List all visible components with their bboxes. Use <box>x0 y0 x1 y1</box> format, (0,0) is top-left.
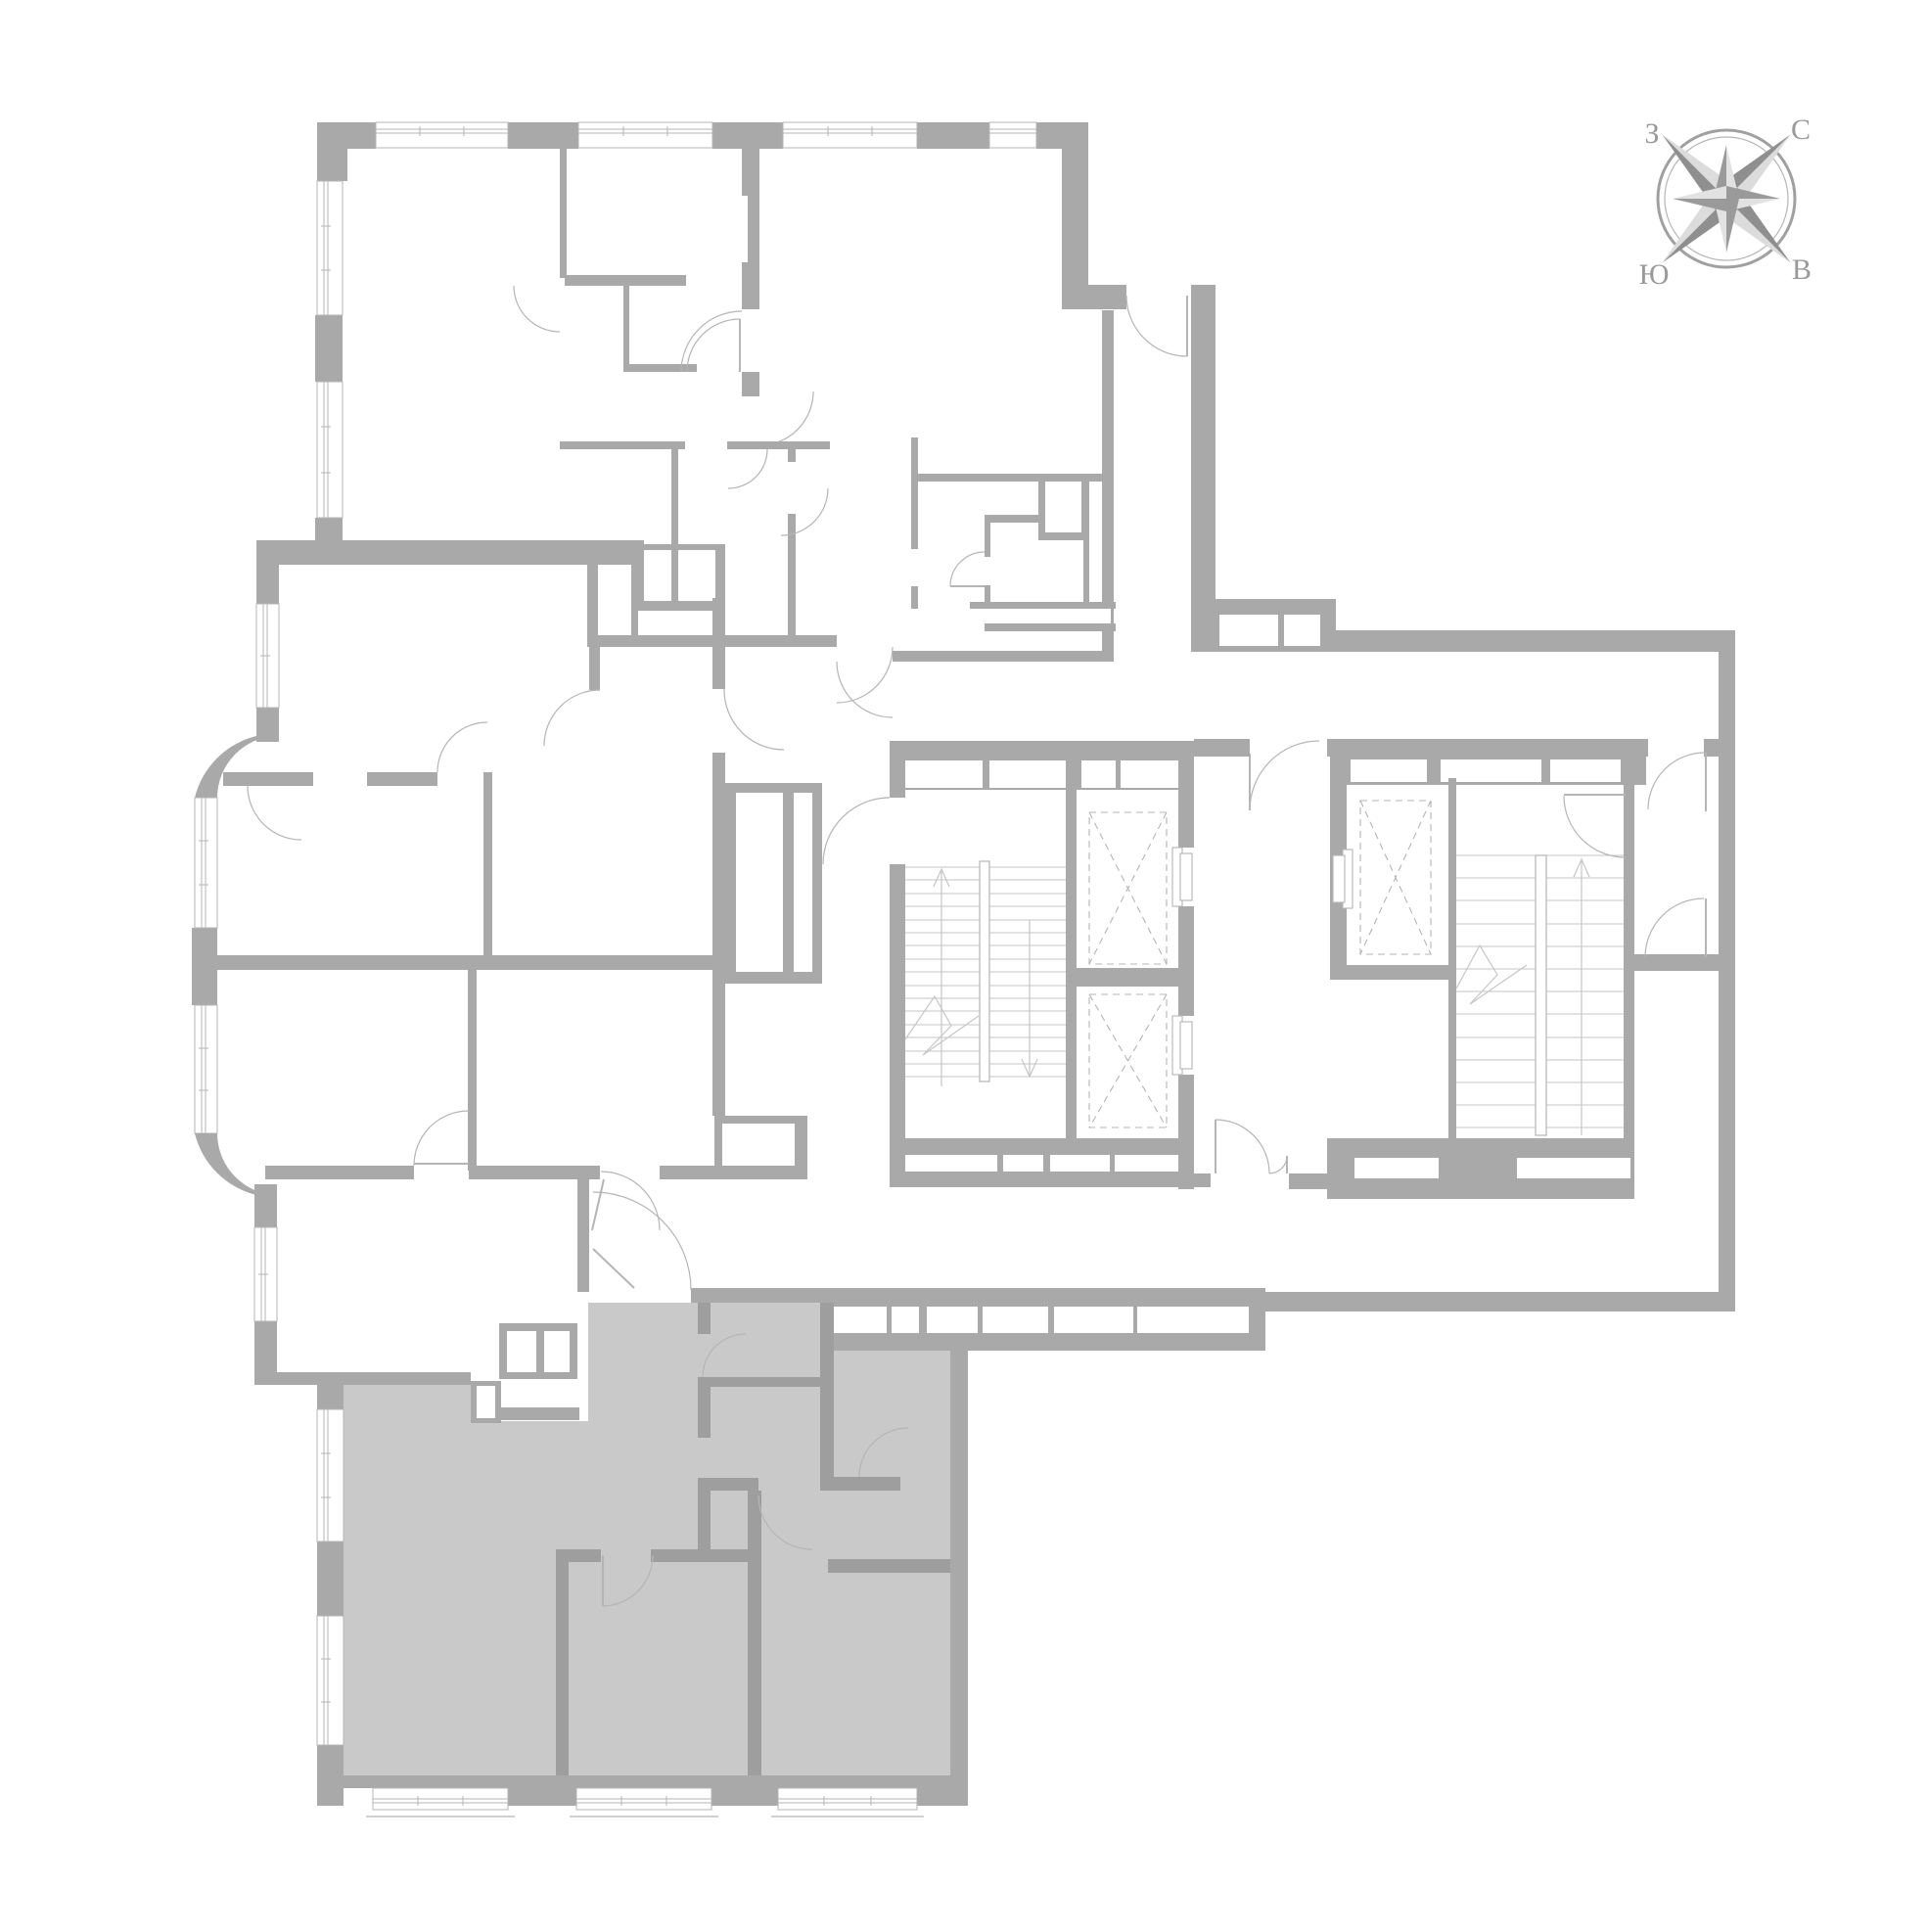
svg-text:С: С <box>1791 114 1811 146</box>
svg-text:Ю: Ю <box>1639 258 1670 291</box>
svg-text:В: В <box>1792 253 1812 286</box>
svg-text:З: З <box>1644 117 1659 150</box>
